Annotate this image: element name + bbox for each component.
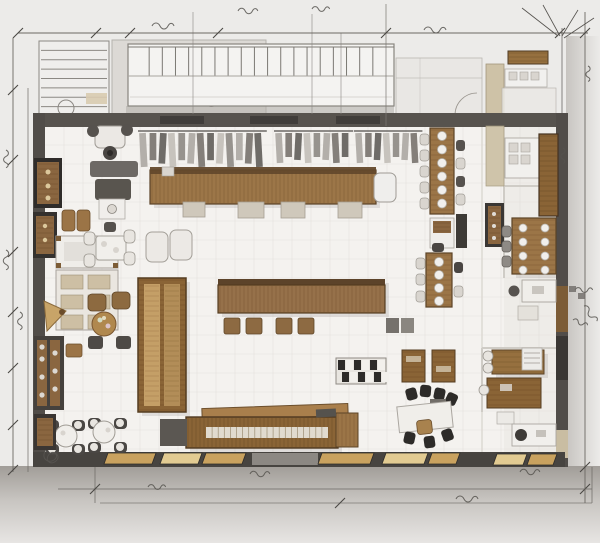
plate (519, 238, 527, 246)
chair (420, 182, 429, 193)
garment (342, 133, 349, 157)
bench-seat (62, 210, 75, 231)
fixture (509, 143, 518, 152)
merch-item (346, 360, 353, 370)
chair (420, 198, 429, 209)
plate (519, 252, 527, 260)
wall-vent (336, 116, 380, 124)
plate (541, 224, 549, 232)
flower (106, 324, 111, 329)
floor-plan-drawing (0, 0, 600, 543)
chair (84, 254, 95, 267)
goods-item (88, 275, 110, 289)
dimension-label-scribble (312, 7, 330, 12)
counter-endcap (160, 419, 187, 446)
chair (420, 134, 429, 145)
coffee-cart-dish (108, 205, 117, 214)
desk-item (532, 286, 544, 294)
chair-top (116, 443, 124, 451)
chair-top (74, 445, 82, 453)
display-item (43, 224, 47, 228)
wall-right-dark (556, 336, 568, 380)
desk-chair (509, 286, 520, 297)
shelf-tower (402, 350, 425, 382)
chair (87, 125, 99, 137)
floor-plan-container (0, 0, 600, 543)
stool-box (238, 202, 264, 218)
chair (84, 232, 95, 245)
plate (541, 238, 549, 246)
armchair-wood (88, 294, 106, 311)
wardrobe (539, 134, 558, 216)
stool (224, 318, 240, 334)
merch-item (370, 360, 377, 370)
goods-item (61, 295, 83, 309)
stock-item (492, 236, 496, 240)
display-table-endcap (374, 173, 396, 202)
chair (420, 166, 429, 177)
chair-dark (104, 222, 116, 232)
wall-vent (160, 116, 204, 124)
pantry-fixture (531, 72, 539, 80)
stock-item (492, 212, 496, 216)
armchair (95, 126, 125, 148)
fixture (521, 143, 530, 152)
counter-cap (316, 408, 336, 417)
meeting-table (512, 218, 556, 274)
goods-item (61, 275, 83, 289)
desk-item (536, 430, 546, 437)
corner-cabinet-shelves (37, 418, 53, 446)
chair (420, 150, 429, 161)
chair-dark (432, 243, 444, 252)
pantry-fixture (520, 72, 528, 80)
display-item (46, 184, 51, 189)
plate (435, 271, 444, 280)
jar (52, 368, 57, 373)
office-chair (479, 385, 489, 395)
plate (438, 199, 447, 208)
canopy-shadow (126, 106, 394, 113)
daybed-post (56, 236, 61, 241)
plate (519, 224, 527, 232)
leader-line (562, 10, 578, 36)
stool-box (281, 202, 305, 218)
side-cabinet (518, 306, 538, 320)
display-table-long (150, 170, 376, 204)
slat-table-edge (218, 279, 385, 285)
chair (416, 291, 425, 302)
corner-cabinet-shelves-base (37, 418, 53, 446)
lounge-chair (146, 232, 168, 262)
clip-item (162, 167, 174, 176)
wall-top (33, 113, 565, 127)
daybed-post (56, 263, 61, 268)
chair (416, 274, 425, 285)
chair-dark (116, 336, 131, 349)
daybed-post (113, 263, 118, 268)
merch-item (354, 360, 361, 370)
display-window (382, 453, 428, 464)
garment (150, 133, 157, 160)
plate (61, 431, 66, 436)
chair (124, 252, 135, 265)
backroom-outline (396, 58, 482, 115)
sofa (90, 161, 138, 177)
pantry-room (502, 88, 556, 115)
plate (438, 172, 447, 181)
display-case-shelves (36, 216, 54, 254)
chair (416, 258, 425, 269)
gray-box (386, 318, 399, 333)
dimension-mark (569, 286, 576, 292)
plate (113, 247, 119, 253)
display-table-edge (150, 167, 376, 174)
chair (124, 230, 135, 243)
bench-seat (77, 210, 90, 231)
jar (39, 392, 44, 397)
display-window (318, 453, 374, 464)
tall-shelf-column (164, 284, 180, 406)
dimension-label-scribble (18, 312, 23, 330)
armchair-wood (112, 292, 130, 309)
entrance-threshold (252, 453, 318, 465)
dimension-label-scribble (238, 8, 258, 13)
chair-dark (88, 336, 103, 349)
merch-item (378, 360, 385, 370)
merch-item (342, 372, 349, 382)
chair (456, 194, 465, 205)
merch-item (366, 372, 373, 382)
gray-box (401, 318, 414, 333)
merch-item (350, 372, 357, 382)
lounge-chair (170, 230, 192, 260)
dimension-label-scribble (3, 250, 8, 270)
plate (435, 258, 444, 267)
counter-endwood (336, 413, 358, 447)
display-window (493, 454, 527, 465)
cafe-table (96, 236, 126, 260)
office-desk (487, 378, 541, 408)
office-chair (483, 363, 493, 373)
garment (178, 133, 185, 160)
stool (66, 344, 82, 357)
plate (438, 145, 447, 154)
jar (39, 374, 44, 379)
merch-item (358, 372, 365, 382)
wall-right-wood-door (556, 286, 568, 332)
office-desk-base (487, 378, 541, 408)
bottom-ground-band (0, 466, 600, 543)
sink (497, 412, 514, 424)
stool-box (338, 202, 362, 218)
stock-item (492, 224, 496, 228)
plate (438, 159, 447, 168)
dark-unit (456, 214, 467, 248)
stool (246, 318, 262, 334)
fixture (509, 155, 518, 164)
chair-dark (456, 140, 465, 151)
chair (121, 124, 133, 136)
sofa (95, 179, 131, 200)
stool (276, 318, 292, 334)
counter-endwood-base (336, 413, 358, 447)
plate (541, 252, 549, 260)
flower-table (92, 312, 116, 336)
fixture (521, 155, 530, 164)
shelf-goods (406, 356, 421, 362)
goods-item (61, 315, 83, 329)
pantry-fixture (509, 72, 517, 80)
tall-shelf-column-base (164, 284, 180, 406)
stool (298, 318, 314, 334)
chair-top (74, 421, 82, 429)
reception-chair (515, 429, 527, 441)
chair-dark (454, 262, 463, 273)
display-item (46, 170, 51, 175)
dimension-label-scribble (4, 150, 9, 168)
dimension-mark (578, 293, 585, 299)
display-item (46, 196, 51, 201)
merch-item (374, 372, 381, 382)
plate (541, 266, 549, 274)
cafe-round-table (55, 425, 77, 447)
jar (52, 386, 57, 391)
service-cabinet-wood (433, 221, 451, 233)
meeting-table-base (512, 218, 556, 274)
plate (519, 266, 527, 274)
door-mat (86, 93, 107, 104)
display-window (104, 453, 156, 464)
chair-top (116, 419, 124, 427)
side-table-top (107, 150, 113, 156)
merch-item (338, 360, 345, 370)
jar (39, 356, 44, 361)
office-chair (483, 351, 493, 361)
jar (52, 350, 57, 355)
garment (365, 133, 371, 157)
chair-black (423, 435, 436, 448)
wall-cabinet (508, 51, 548, 64)
right-ground-band (566, 36, 600, 466)
plate (101, 241, 107, 247)
garment (393, 133, 399, 157)
garment (207, 133, 214, 160)
display-item (43, 238, 47, 242)
wall-vent (250, 116, 298, 124)
display-window (527, 454, 557, 465)
merch-item (382, 372, 389, 382)
dimension-label-scribble (424, 27, 446, 33)
chair-top (90, 443, 98, 451)
towel-rack (522, 348, 542, 370)
plate (435, 284, 444, 293)
chair (456, 158, 465, 169)
merch-item (362, 360, 369, 370)
chair (454, 286, 463, 297)
tall-shelf-column-base (144, 284, 160, 406)
cafe-round-table (93, 421, 115, 443)
chair-gray (502, 226, 511, 237)
desk-papers (500, 384, 512, 391)
garment (285, 133, 292, 157)
chair-gray (502, 241, 511, 252)
horn-speaker-bell (59, 309, 65, 315)
plate (106, 428, 111, 433)
garment (236, 133, 243, 160)
chair-dark (456, 176, 465, 187)
display-window (428, 453, 460, 464)
tall-shelf-column (144, 284, 160, 406)
plate (438, 132, 447, 141)
plate (438, 186, 447, 195)
slat-table (218, 285, 385, 313)
flower (102, 316, 106, 320)
shelf-goods (436, 366, 451, 372)
chair-wood (416, 419, 432, 434)
flower (98, 318, 103, 323)
dimension-label-scribble (152, 23, 174, 29)
corridor-floor (486, 126, 504, 186)
plate (435, 297, 444, 306)
jar (39, 344, 44, 349)
display-window (160, 453, 202, 464)
garment (314, 133, 321, 157)
display-window (202, 453, 246, 464)
chair-black (419, 385, 431, 398)
chair-gray (502, 256, 511, 267)
stool-box (183, 202, 205, 217)
